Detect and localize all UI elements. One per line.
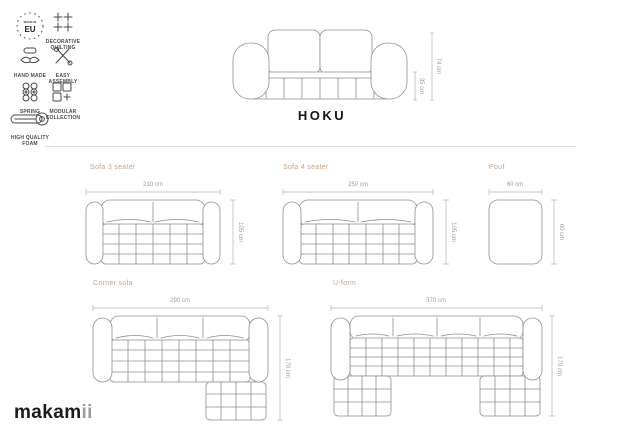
sofa3-width-label: 210 cm: [143, 182, 163, 188]
badge-high-quality-foam: HIGH QUALITY FOAM: [8, 110, 52, 147]
sofa3-depth-dimension: 105 cm: [230, 200, 243, 264]
uform-depth-label: 170 cm: [556, 356, 562, 376]
sofa4-depth-label: 105 cm: [450, 222, 456, 242]
pouf-width-label: 60 cm: [507, 182, 523, 188]
pouf-depth-label: 60 cm: [558, 224, 564, 240]
eu-badge-top-text: MADE IN: [24, 20, 37, 24]
u-form-drawing: 370 cm 170 cm: [328, 294, 566, 428]
hand-made-label: HAND MADE: [12, 73, 48, 79]
corner-sofa-drawing: 290 cm 170 cm: [90, 294, 294, 428]
badge-easy-assembly: EASY ASSEMBLY: [45, 46, 81, 85]
page-title: HOKU: [232, 108, 412, 123]
uform-width-label: 370 cm: [426, 298, 446, 304]
hand-made-icon: [18, 46, 42, 66]
pouf-depth-dimension: 60 cm: [551, 200, 564, 264]
seat-height-label: 35 cm: [418, 78, 424, 94]
easy-assembly-icon: [52, 46, 74, 66]
corner-depth-label: 170 cm: [284, 358, 290, 378]
brand-logo-suffix: ii: [82, 402, 93, 423]
brand-logo-main: makam: [14, 402, 82, 423]
total-height-dimension: 74 cm: [430, 33, 441, 100]
label-u-form: U-form: [333, 280, 356, 287]
total-height-label: 74 cm: [435, 58, 441, 74]
spring-icon: [18, 82, 42, 102]
label-sofa-3-seater: Sofa 3 seater: [90, 164, 136, 171]
pouf-drawing: 60 cm 60 cm: [486, 178, 570, 274]
badge-made-in-eu: MADE IN EU: [12, 11, 48, 46]
sofa-3-seater-drawing: 210 cm 105 cm: [83, 178, 245, 274]
sofa-front-view-drawing: 35 cm 74 cm: [230, 26, 442, 106]
eu-badge-main-text: EU: [24, 25, 35, 34]
corner-depth-dimension: 170 cm: [277, 316, 290, 420]
corner-width-label: 290 cm: [170, 298, 190, 304]
label-pouf: Pouf: [489, 164, 505, 171]
badge-hand-made: HAND MADE: [12, 46, 48, 79]
made-in-eu-icon: MADE IN EU: [15, 11, 45, 41]
sofa-4-seater-drawing: 250 cm 105 cm: [280, 178, 458, 274]
brand-logo: makamii: [14, 402, 93, 424]
sofa4-depth-dimension: 105 cm: [443, 200, 456, 264]
sofa3-depth-label: 105 cm: [237, 222, 243, 242]
foam-icon: [10, 110, 50, 128]
label-corner-sofa: Corner sofa: [93, 280, 133, 287]
label-sofa-4-seater: Sofa 4 seater: [283, 164, 329, 171]
uform-depth-dimension: 170 cm: [549, 316, 562, 416]
sofa4-width-label: 250 cm: [348, 182, 368, 188]
seat-height-dimension: 35 cm: [413, 72, 424, 100]
modular-collection-icon: [52, 82, 74, 102]
quilting-icon: [52, 12, 74, 32]
section-divider: [45, 146, 576, 147]
